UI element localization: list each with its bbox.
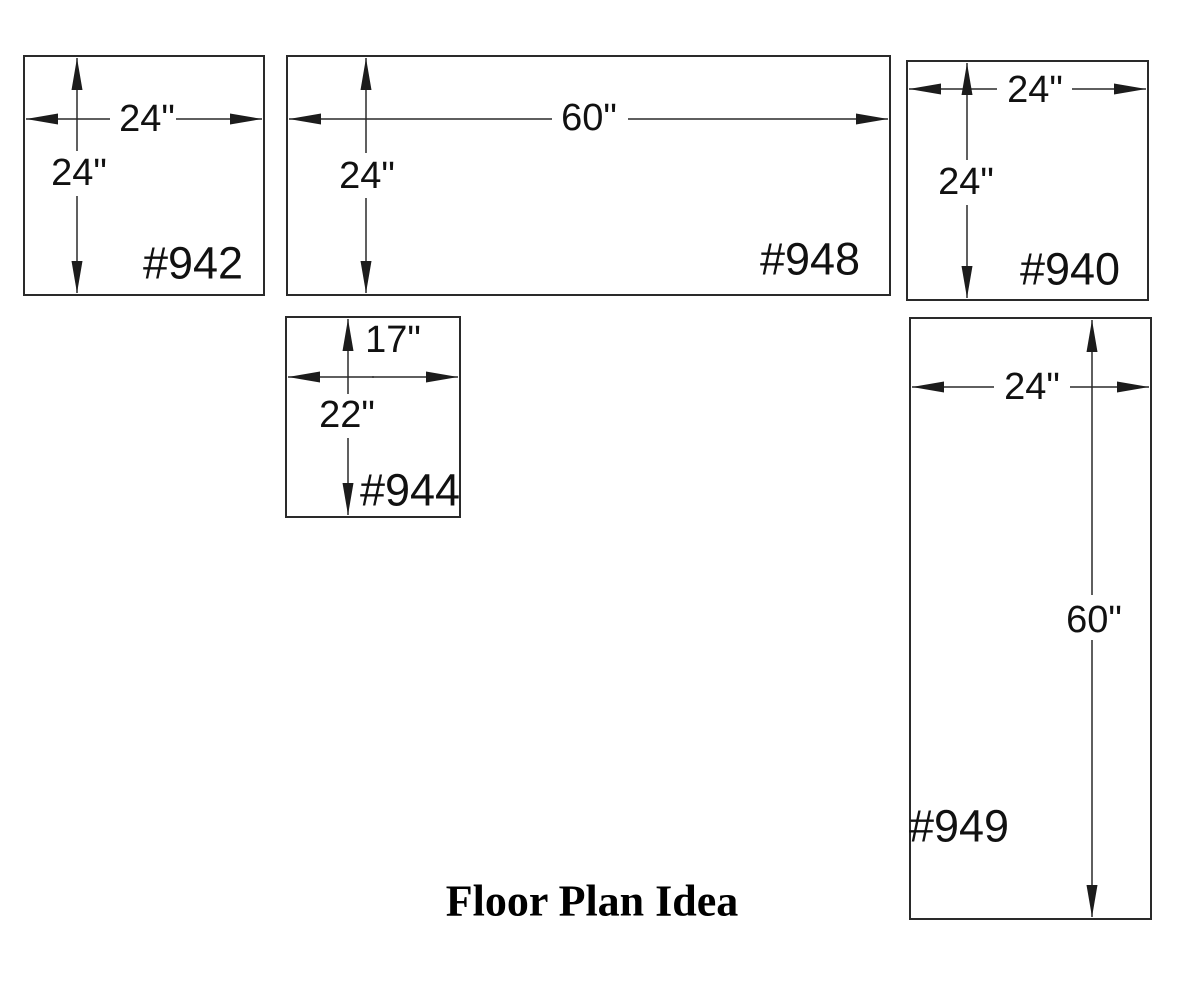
floor-plan-diagram: 24" 24" #942 60" 24" #948 [0,0,1200,1000]
cabinet-949: 24" 60" #949 [909,318,1151,919]
cabinet-944-width-label: 17" [365,319,421,361]
cabinet-948-height-label: 24" [339,155,395,197]
cabinet-942-width-label: 24" [119,98,175,140]
cabinet-944: 17" 22" #944 [286,317,460,517]
cabinet-942-height-label: 24" [51,152,107,194]
cabinet-944-height-label: 22" [319,394,375,436]
cabinet-942-id-label: #942 [143,238,243,289]
cabinet-940-id-label: #940 [1020,244,1120,295]
cabinet-949-width-label: 24" [1004,366,1060,408]
floor-plan-canvas: 24" 24" #942 60" 24" #948 [0,0,1200,1000]
cabinet-942: 24" 24" #942 [24,56,264,295]
cabinet-944-id-label: #944 [360,465,460,516]
cabinet-948: 60" 24" #948 [287,56,890,295]
cabinet-948-id-label: #948 [760,234,860,285]
cabinet-948-width-label: 60" [561,97,617,139]
cabinet-949-height-label: 60" [1066,599,1122,641]
cabinet-940: 24" 24" #940 [907,61,1148,300]
cabinet-949-id-label: #949 [909,801,1009,852]
cabinet-940-height-label: 24" [938,161,994,203]
diagram-title: Floor Plan Idea [446,877,739,926]
cabinet-940-width-label: 24" [1007,69,1063,111]
